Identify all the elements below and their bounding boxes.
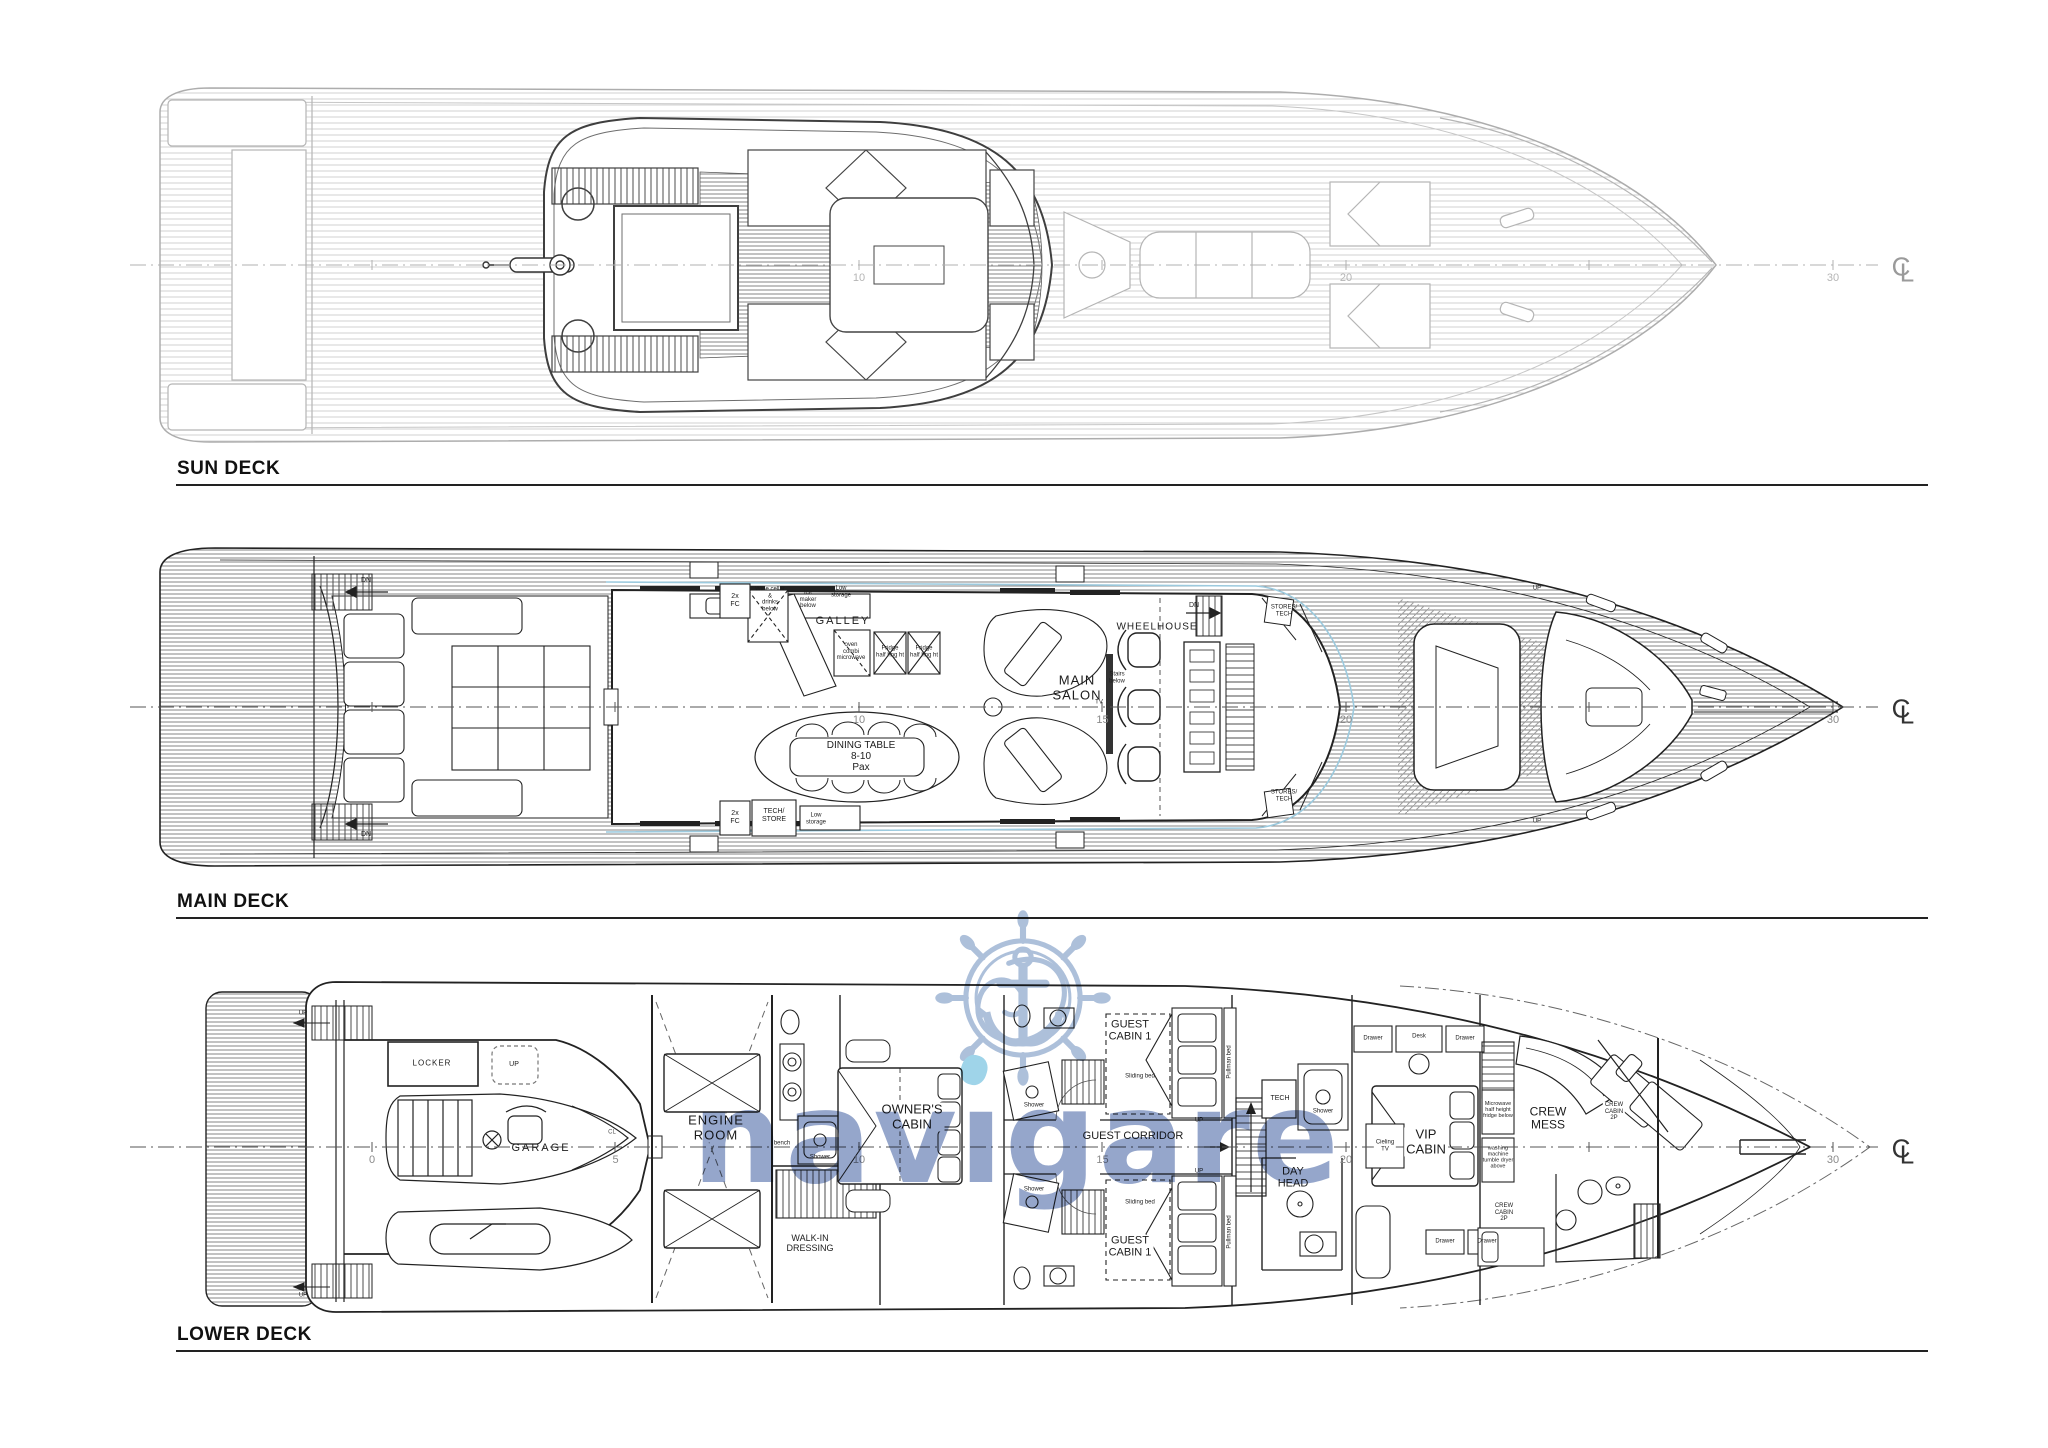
main-deck-drawing (130, 548, 1878, 866)
stores-tech-box (1264, 596, 1293, 625)
sun-deck-drawing (130, 88, 1878, 442)
lower-deck-title: LOWER DECK (177, 1324, 312, 1346)
flybridge-stairs (552, 336, 698, 372)
tv-sideboard (1106, 654, 1113, 754)
yacht-deck-plans-page: CL102030 GALLEY2x FC2x FCWine cellar & d… (0, 0, 2048, 1448)
dining-table-group (755, 712, 959, 802)
main-deck-rule (176, 917, 1928, 919)
flybridge-skylight (614, 206, 738, 330)
stores-tech-box (1264, 788, 1293, 817)
dn-stairs (1196, 596, 1222, 636)
swim-platform (206, 992, 318, 1306)
transom-stairs (312, 804, 372, 840)
flybridge-stairs (552, 168, 698, 204)
lower-deck-rule (176, 1350, 1928, 1352)
boarding-stairs (312, 1264, 372, 1298)
sun-deck-title: SUN DECK (177, 458, 280, 480)
deck-plans-drawing (0, 0, 2048, 1448)
sun-deck-rule (176, 484, 1928, 486)
locker-room (388, 1042, 478, 1086)
mid-shower (1298, 1064, 1348, 1130)
lower-deck-drawing (130, 982, 1878, 1312)
tech-room (1262, 1080, 1296, 1118)
main-deck-title: MAIN DECK (177, 891, 289, 913)
